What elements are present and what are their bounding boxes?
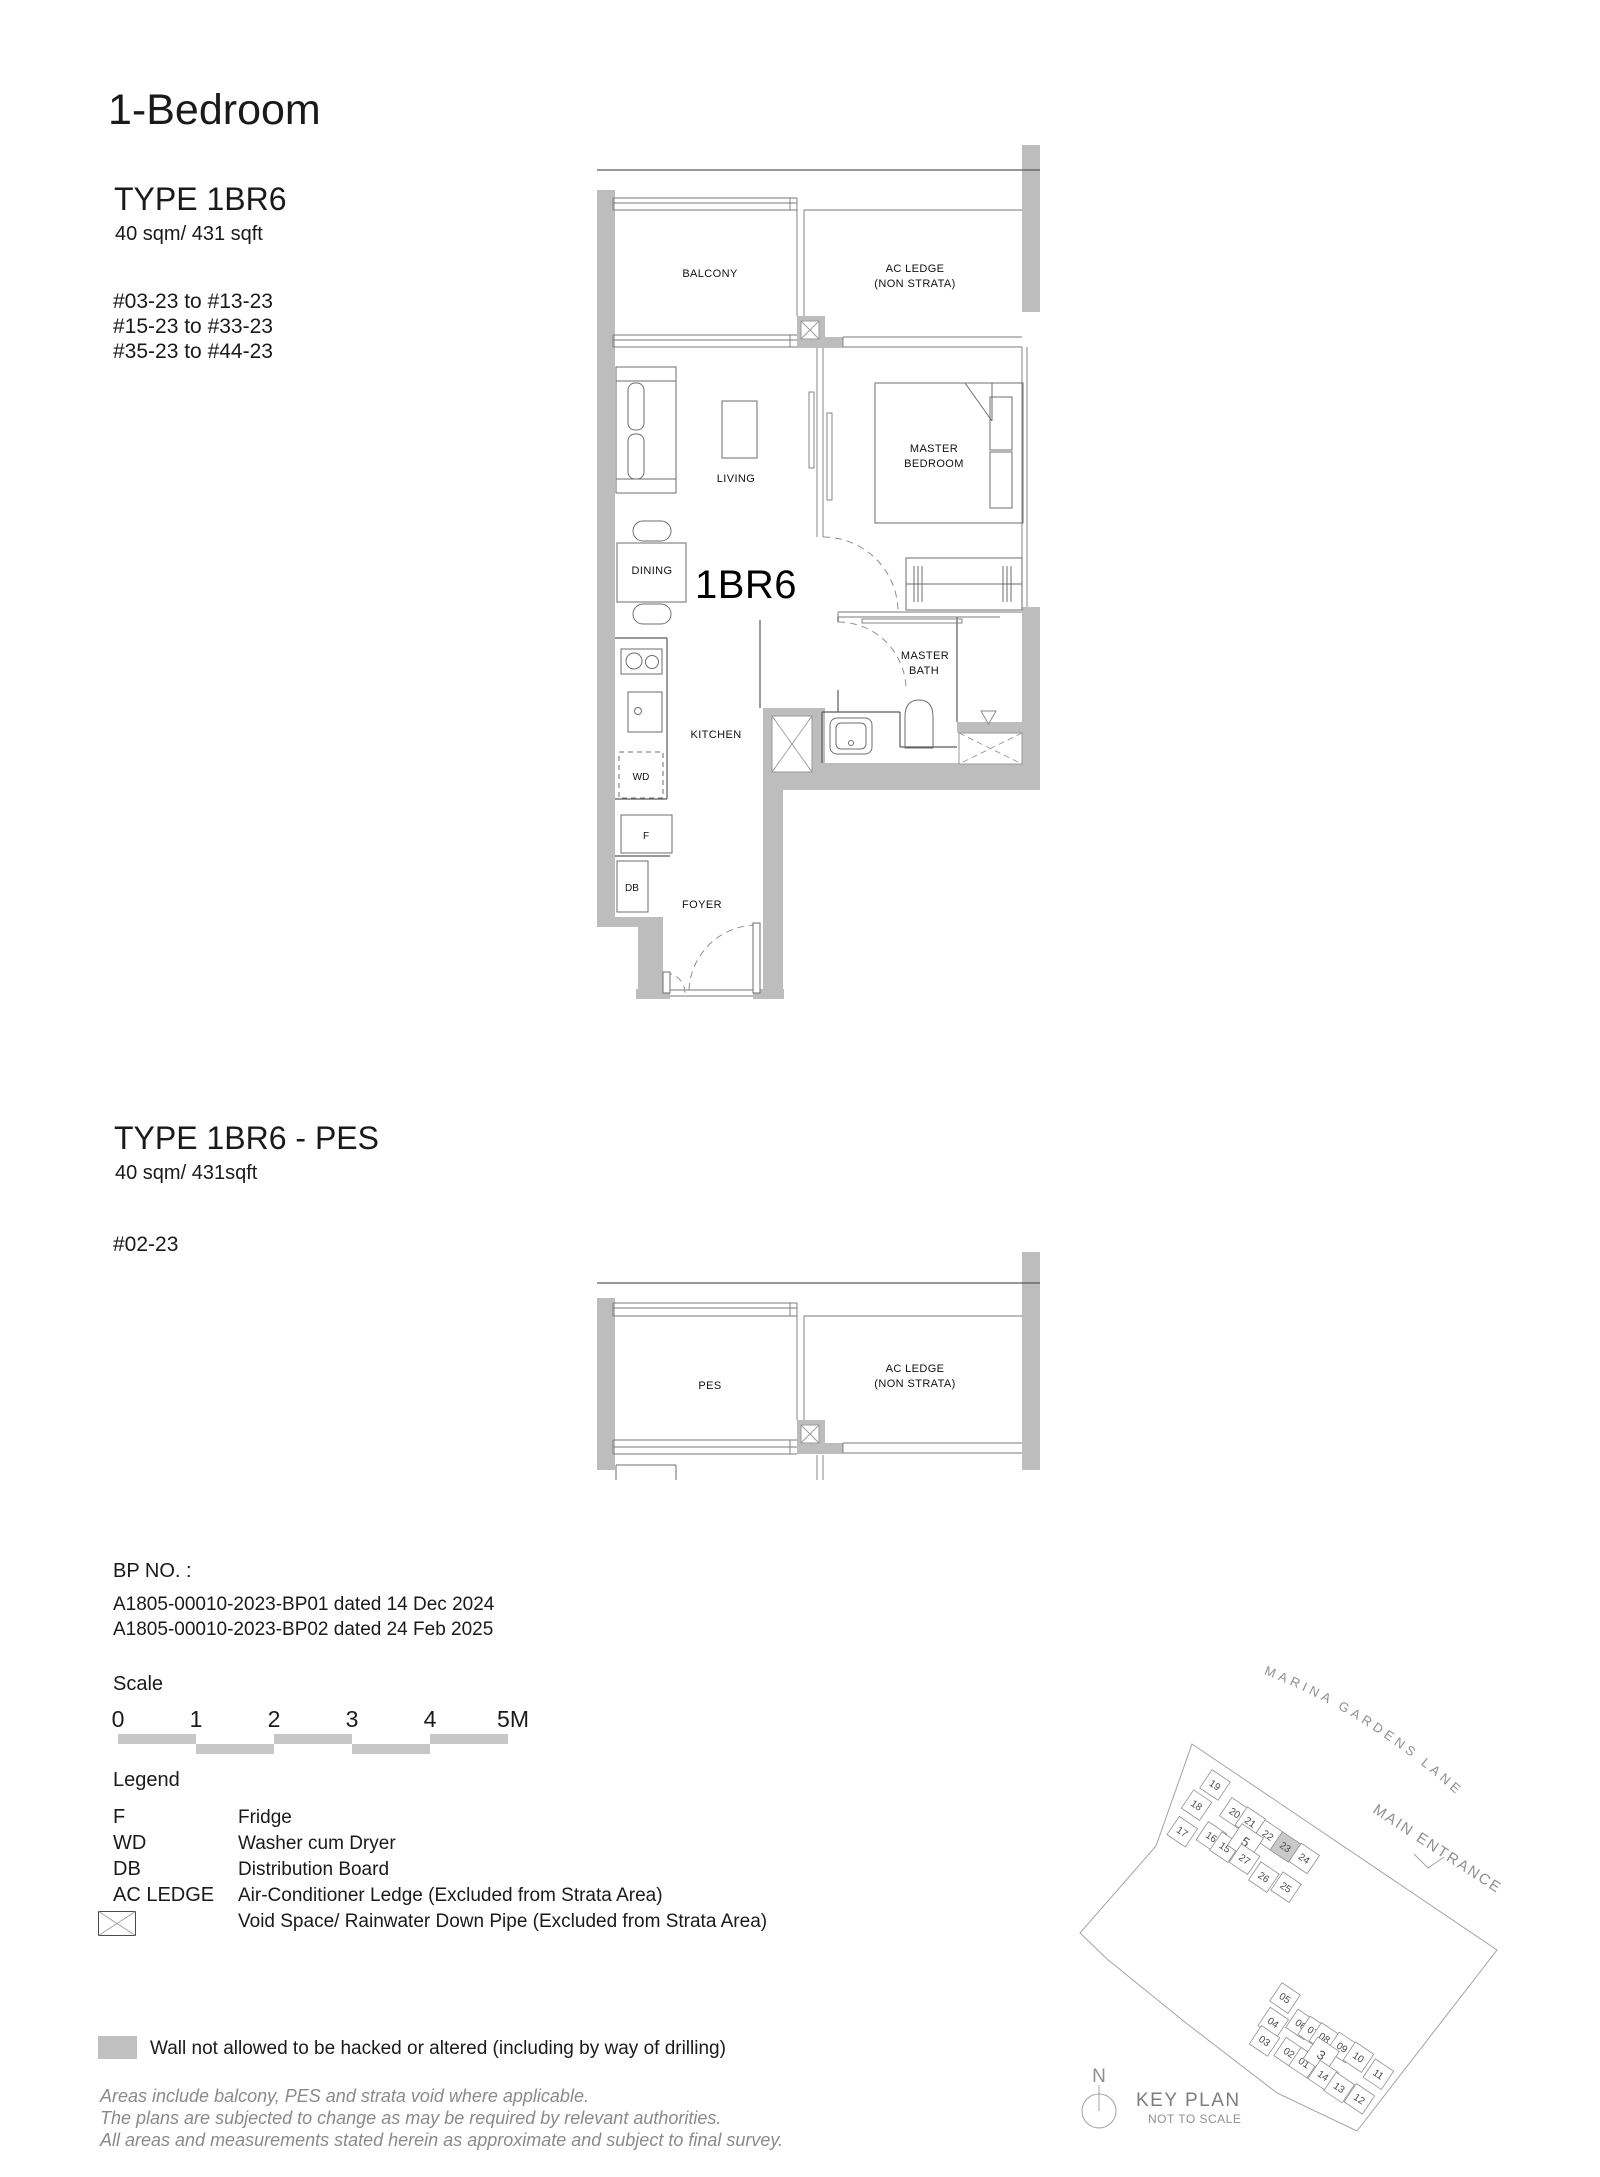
room-label-master-bath-1: MASTER xyxy=(901,650,949,662)
entry-door-jamb xyxy=(753,923,760,993)
plan-a-area-label: 40 sqm/ 431 sqft xyxy=(115,224,263,244)
kitchen-sink xyxy=(628,692,662,732)
legend-key: WD xyxy=(113,1832,146,1855)
room-label-ac-ledge: AC LEDGE xyxy=(886,1363,945,1375)
keyplan-cluster-upper: 19 18 17 20 21 22 23 24 16 15 5 27 26 25 xyxy=(1165,1767,1327,1912)
void-spaces xyxy=(772,321,1022,772)
label-db: DB xyxy=(625,883,639,894)
room-label-non-strata: (NON STRATA) xyxy=(874,1378,955,1390)
legend-row: WD Washer cum Dryer xyxy=(113,1832,1013,1858)
floor-plan-1br6-pes: PES AC LEDGE (NON STRATA) xyxy=(580,1240,1045,1485)
label-wd: WD xyxy=(633,772,650,783)
wardrobe xyxy=(906,558,1022,610)
legend-key: AC LEDGE xyxy=(113,1884,214,1907)
floor-plan-1br6: BALCONY AC LEDGE (NON STRATA) LIVING MAS… xyxy=(580,100,1045,1005)
bp-heading: BP NO. : xyxy=(113,1561,192,1581)
room-label-kitchen: KITCHEN xyxy=(690,729,741,741)
main-entrance-label: MAIN ENTRANCE xyxy=(1370,1801,1505,1897)
room-label-living: LIVING xyxy=(717,473,755,485)
void-spaces xyxy=(801,1425,819,1443)
void-crossed-box-icon xyxy=(98,1911,136,1941)
keyplan-subtitle: NOT TO SCALE xyxy=(1148,2112,1241,2126)
scale-bar: 0 1 2 3 4 5M xyxy=(118,1706,510,1754)
legend-key: F xyxy=(113,1806,125,1829)
keyplan-title: KEY PLAN xyxy=(1136,2090,1241,2111)
entry-door-jamb xyxy=(663,972,670,993)
footnote: All areas and measurements stated herein… xyxy=(100,2129,783,2151)
room-label-ac-ledge: AC LEDGE xyxy=(886,263,945,275)
footnote: The plans are subjected to change as may… xyxy=(100,2107,783,2129)
room-label-pes: PES xyxy=(698,1380,721,1392)
key-plan: MARINA GARDENS LANE MAIN ENTRANCE 19 18 … xyxy=(1050,1630,1600,2177)
footnotes: Areas include balcony, PES and strata vo… xyxy=(100,2085,783,2151)
scale-bar-upper xyxy=(118,1734,508,1744)
plan-a-type-label: TYPE 1BR6 xyxy=(114,183,287,215)
walls-and-windows xyxy=(597,170,1040,996)
unit-type-tag: 1BR6 xyxy=(695,563,797,607)
scale-tick: 4 xyxy=(424,1706,437,1733)
room-label-dining: DINING xyxy=(632,565,673,577)
bp-line: A1805-00010-2023-BP01 dated 14 Dec 2024 xyxy=(113,1592,494,1617)
unit-range: #02-23 xyxy=(113,1232,178,1257)
legend-desc: Air-Conditioner Ledge (Excluded from Str… xyxy=(238,1885,663,1907)
unit-range: #35-23 to #44-23 xyxy=(113,339,273,364)
room-label-bedroom: BEDROOM xyxy=(904,458,964,470)
room-label-foyer: FOYER xyxy=(682,899,722,911)
legend-row: DB Distribution Board xyxy=(113,1858,1013,1884)
legend-row: F Fridge xyxy=(113,1806,1013,1832)
legend-row: Void Space/ Rainwater Down Pipe (Exclude… xyxy=(113,1910,1013,1936)
scale-label: Scale xyxy=(113,1674,163,1694)
plan-a-unit-ranges: #03-23 to #13-23 #15-23 to #33-23 #35-23… xyxy=(113,289,273,364)
scale-tick: 0 xyxy=(112,1706,125,1733)
legend-desc: Fridge xyxy=(238,1807,292,1829)
wall-note-text: Wall not allowed to be hacked or altered… xyxy=(150,2038,726,2060)
bath-sink xyxy=(830,718,872,754)
unit-range: #15-23 to #33-23 xyxy=(113,314,273,339)
north-label: N xyxy=(1092,2066,1106,2087)
toilet xyxy=(905,700,933,748)
legend-desc: Void Space/ Rainwater Down Pipe (Exclude… xyxy=(238,1911,767,1933)
room-label-balcony: BALCONY xyxy=(682,268,738,280)
wall-note-swatch xyxy=(98,2036,137,2059)
compass-icon: N xyxy=(1082,2066,1116,2128)
room-label-master-bath-2: BATH xyxy=(909,665,939,677)
page-title: 1-Bedroom xyxy=(108,89,321,132)
unit-range: #03-23 to #13-23 xyxy=(113,289,273,314)
scale-tick: 2 xyxy=(268,1706,281,1733)
cooktop xyxy=(621,649,662,674)
legend-key: DB xyxy=(113,1858,141,1881)
bp-lines: A1805-00010-2023-BP01 dated 14 Dec 2024 … xyxy=(113,1592,494,1642)
legend-desc: Washer cum Dryer xyxy=(238,1833,396,1855)
room-labels: PES AC LEDGE (NON STRATA) xyxy=(698,1363,955,1392)
tv-console xyxy=(722,401,757,458)
furniture xyxy=(616,367,1023,912)
room-label-master: MASTER xyxy=(910,443,958,455)
floorplan-brochure-page: 1-Bedroom TYPE 1BR6 40 sqm/ 431 sqft #03… xyxy=(0,0,1600,2177)
room-labels: BALCONY AC LEDGE (NON STRATA) LIVING MAS… xyxy=(625,263,964,911)
street-name-text: MARINA GARDENS LANE xyxy=(1263,1663,1467,1799)
footnote: Areas include balcony, PES and strata vo… xyxy=(100,2085,783,2107)
label-fridge: F xyxy=(643,831,649,842)
scale-tick: 1 xyxy=(190,1706,203,1733)
legend-desc: Distribution Board xyxy=(238,1859,389,1881)
street-name: MARINA GARDENS LANE xyxy=(1263,1663,1467,1799)
bp-line: A1805-00010-2023-BP02 dated 24 Feb 2025 xyxy=(113,1617,494,1642)
keyplan-cluster-lower: 05 04 03 06 07 08 09 10 11 02 01 3 14 13… xyxy=(1243,1983,1399,2120)
site-boundary xyxy=(1080,1744,1497,2131)
plan-b-area-label: 40 sqm/ 431sqft xyxy=(115,1163,257,1183)
legend: F Fridge WD Washer cum Dryer DB Distribu… xyxy=(113,1806,1013,1936)
plan-b-type-label: TYPE 1BR6 - PES xyxy=(114,1122,379,1154)
plan-b-unit-ranges: #02-23 xyxy=(113,1232,178,1257)
room-label-non-strata: (NON STRATA) xyxy=(874,278,955,290)
sofa xyxy=(616,367,676,493)
scale-bar-lower xyxy=(118,1744,508,1754)
scale-tick: 3 xyxy=(346,1706,359,1733)
scale-tick: 5M xyxy=(497,1706,529,1733)
legend-row: AC LEDGE Air-Conditioner Ledge (Excluded… xyxy=(113,1884,1013,1910)
legend-label: Legend xyxy=(113,1770,180,1790)
